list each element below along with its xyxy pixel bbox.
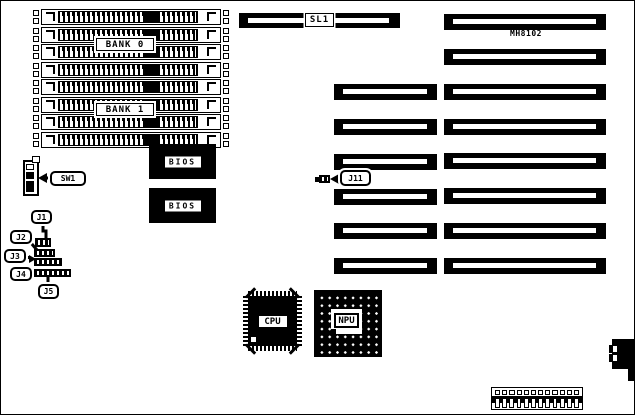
j2-label: J2: [10, 230, 32, 244]
sw1-label: SW1: [50, 171, 86, 186]
j4-label: J4: [10, 267, 32, 281]
j5-label: J5: [38, 284, 59, 299]
motherboard-layout-diagram: BANK 0 BANK 1 SL1 MH8102 BIOS BIOS SW1 J…: [0, 0, 635, 415]
leader-lines: [1, 1, 634, 414]
sl1-label: SL1: [305, 13, 334, 27]
j1-label: J1: [31, 210, 52, 224]
bank1-label: BANK 1: [96, 103, 154, 116]
j3-label: J3: [4, 249, 26, 263]
bank0-label: BANK 0: [96, 38, 154, 51]
j11-label: J11: [340, 170, 371, 186]
